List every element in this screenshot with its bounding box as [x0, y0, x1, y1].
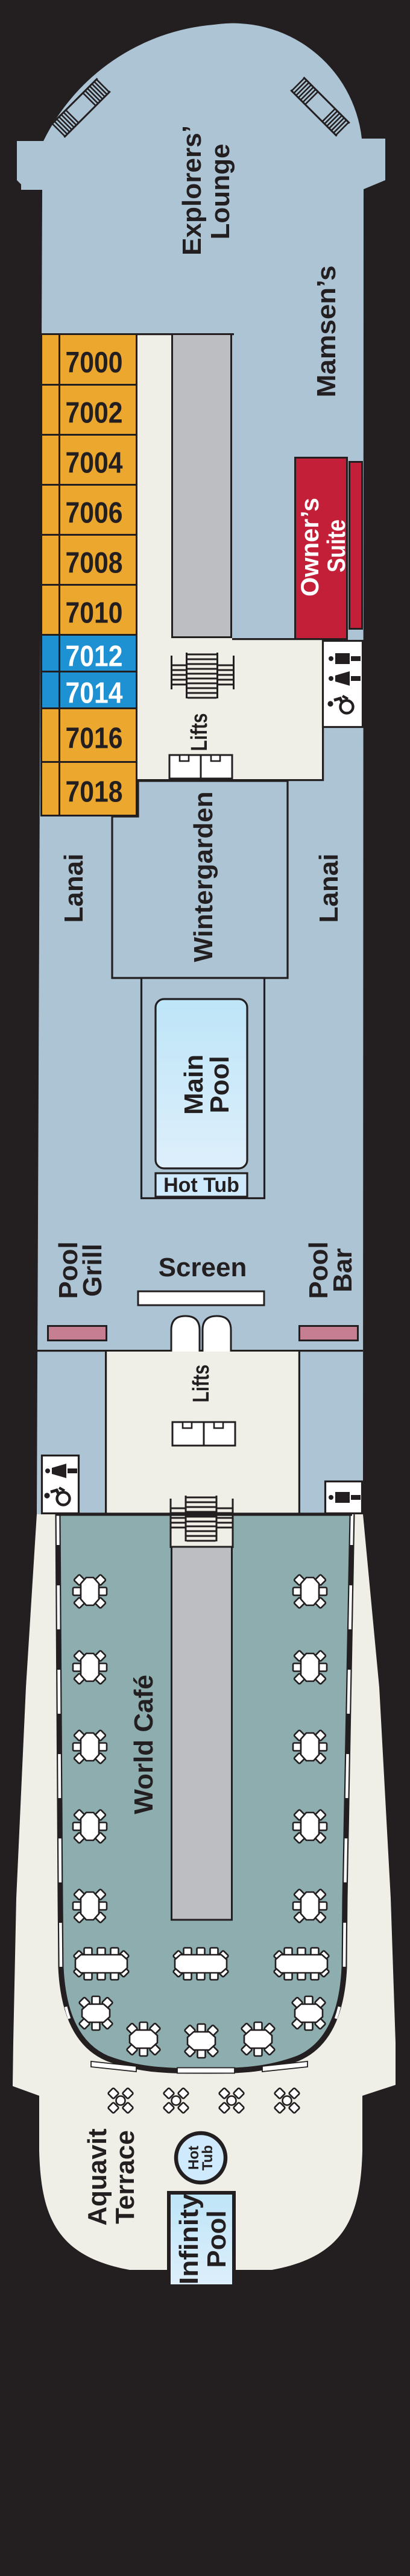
svg-text:Lounge: Lounge — [206, 144, 235, 240]
svg-text:Terrace: Terrace — [110, 2130, 140, 2224]
svg-text:Lanai: Lanai — [314, 854, 344, 923]
svg-text:Pool: Pool — [205, 1056, 235, 1113]
svg-text:7010: 7010 — [66, 597, 123, 630]
svg-text:7016: 7016 — [66, 722, 123, 755]
svg-text:7008: 7008 — [66, 547, 123, 580]
svg-text:Owner’s: Owner’s — [295, 498, 324, 597]
svg-text:Grill: Grill — [78, 1244, 107, 1297]
svg-text:Suite: Suite — [322, 519, 350, 572]
svg-text:Lifts: Lifts — [187, 713, 212, 751]
svg-text:Lanai: Lanai — [59, 854, 89, 923]
svg-text:7018: 7018 — [66, 776, 123, 809]
svg-text:Screen: Screen — [159, 1253, 247, 1282]
svg-text:7006: 7006 — [66, 497, 123, 530]
svg-text:7002: 7002 — [66, 397, 123, 430]
svg-text:7012: 7012 — [66, 641, 123, 673]
svg-text:7000: 7000 — [66, 346, 123, 379]
svg-text:Lifts: Lifts — [189, 1365, 214, 1403]
svg-text:Infinity: Infinity — [174, 2193, 204, 2285]
svg-text:Tub: Tub — [200, 2145, 216, 2170]
svg-text:Pool: Pool — [202, 2210, 232, 2267]
svg-text:Hot Tub: Hot Tub — [163, 1174, 239, 1197]
svg-text:Bar: Bar — [328, 1248, 358, 1292]
svg-text:7014: 7014 — [66, 677, 123, 710]
svg-text:Main: Main — [179, 1055, 209, 1115]
svg-text:Wintergarden: Wintergarden — [189, 791, 218, 962]
svg-text:World Café: World Café — [129, 1675, 159, 1814]
svg-text:7004: 7004 — [66, 447, 123, 480]
svg-text:Explorers’: Explorers’ — [177, 125, 207, 255]
svg-text:Aquavit: Aquavit — [83, 2128, 112, 2226]
svg-text:Mamsen’s: Mamsen’s — [312, 266, 341, 398]
